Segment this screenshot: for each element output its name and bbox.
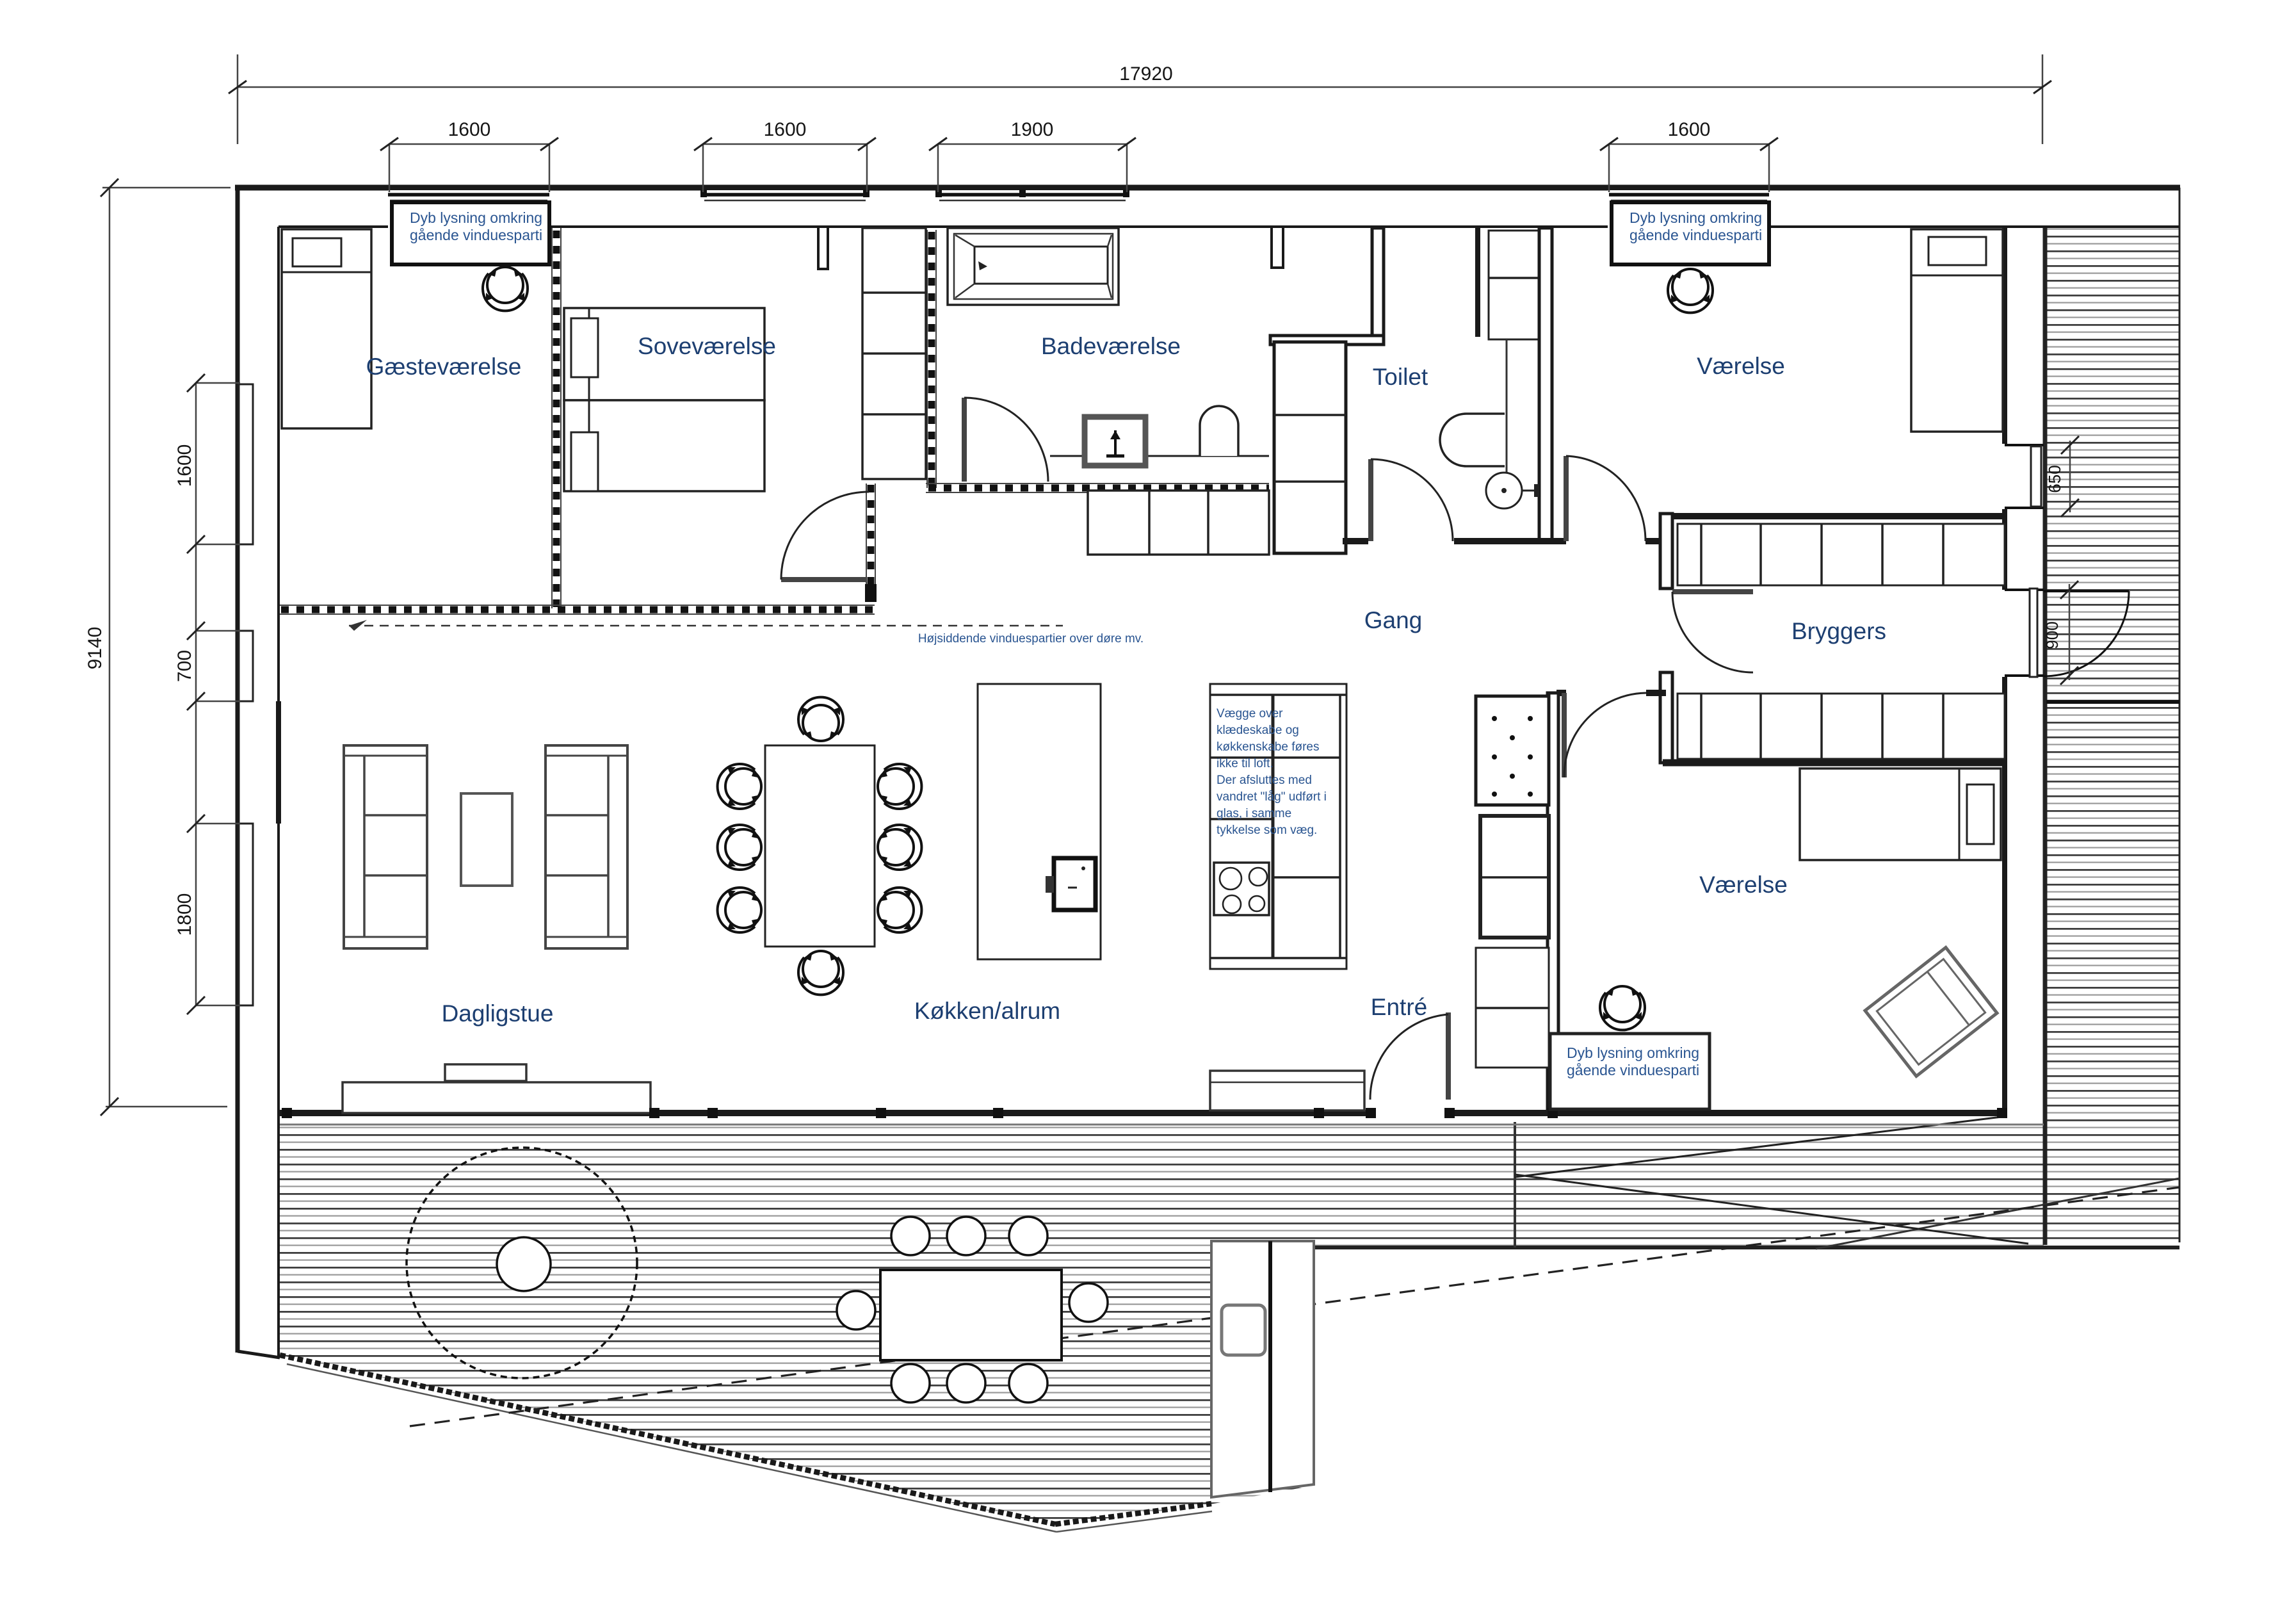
svg-text:Gang: Gang (1364, 607, 1423, 633)
svg-text:tykkelse som væg.: tykkelse som væg. (1217, 824, 1317, 837)
svg-text:9140: 9140 (85, 627, 106, 670)
svg-text:17920: 17920 (1119, 63, 1172, 85)
svg-text:1600: 1600 (448, 119, 491, 140)
svg-text:Gæsteværelse: Gæsteværelse (366, 354, 522, 380)
svg-text:Højsiddende vinduespartier ove: Højsiddende vinduespartier over døre mv. (918, 632, 1144, 646)
svg-text:1600: 1600 (1668, 119, 1711, 140)
svg-text:gående vinduesparti: gående vinduesparti (1567, 1062, 1699, 1078)
svg-text:Soveværelse: Soveværelse (638, 333, 776, 359)
svg-text:900: 900 (2042, 621, 2062, 649)
svg-text:ikke til loft.: ikke til loft. (1217, 757, 1273, 770)
svg-text:650: 650 (2045, 465, 2064, 492)
svg-text:Dyb lysning omkring: Dyb lysning omkring (1567, 1044, 1699, 1061)
svg-text:klædeskabe og: klædeskabe og (1217, 724, 1299, 737)
svg-text:Badeværelse: Badeværelse (1041, 333, 1181, 359)
svg-text:1900: 1900 (1011, 119, 1054, 140)
svg-text:køkkenskabe føres: køkkenskabe føres (1217, 740, 1320, 754)
svg-text:Dyb lysning omkring: Dyb lysning omkring (1629, 209, 1762, 226)
svg-text:Vægge over: Vægge over (1217, 707, 1283, 720)
svg-text:Entré: Entré (1371, 994, 1427, 1020)
svg-text:Værelse: Værelse (1697, 353, 1785, 379)
svg-text:1800: 1800 (174, 893, 195, 936)
svg-text:gående vinduesparti: gående vinduesparti (410, 227, 542, 243)
svg-text:vandret "låg" udført i: vandret "låg" udført i (1217, 790, 1327, 804)
svg-text:Værelse: Værelse (1699, 872, 1788, 898)
svg-text:Toilet: Toilet (1373, 364, 1428, 390)
svg-text:1600: 1600 (764, 119, 807, 140)
svg-text:glas, i samme: glas, i samme (1217, 807, 1291, 820)
svg-text:Dyb lysning omkring: Dyb lysning omkring (410, 209, 542, 226)
svg-text:1600: 1600 (174, 444, 195, 487)
svg-text:700: 700 (174, 650, 195, 682)
svg-text:Køkken/alrum: Køkken/alrum (914, 998, 1060, 1024)
svg-text:Dagligstue: Dagligstue (442, 1000, 554, 1027)
svg-text:Der afsluttes med: Der afsluttes med (1217, 774, 1312, 787)
svg-text:gående vinduesparti: gående vinduesparti (1629, 227, 1762, 243)
svg-text:Bryggers: Bryggers (1791, 618, 1886, 644)
